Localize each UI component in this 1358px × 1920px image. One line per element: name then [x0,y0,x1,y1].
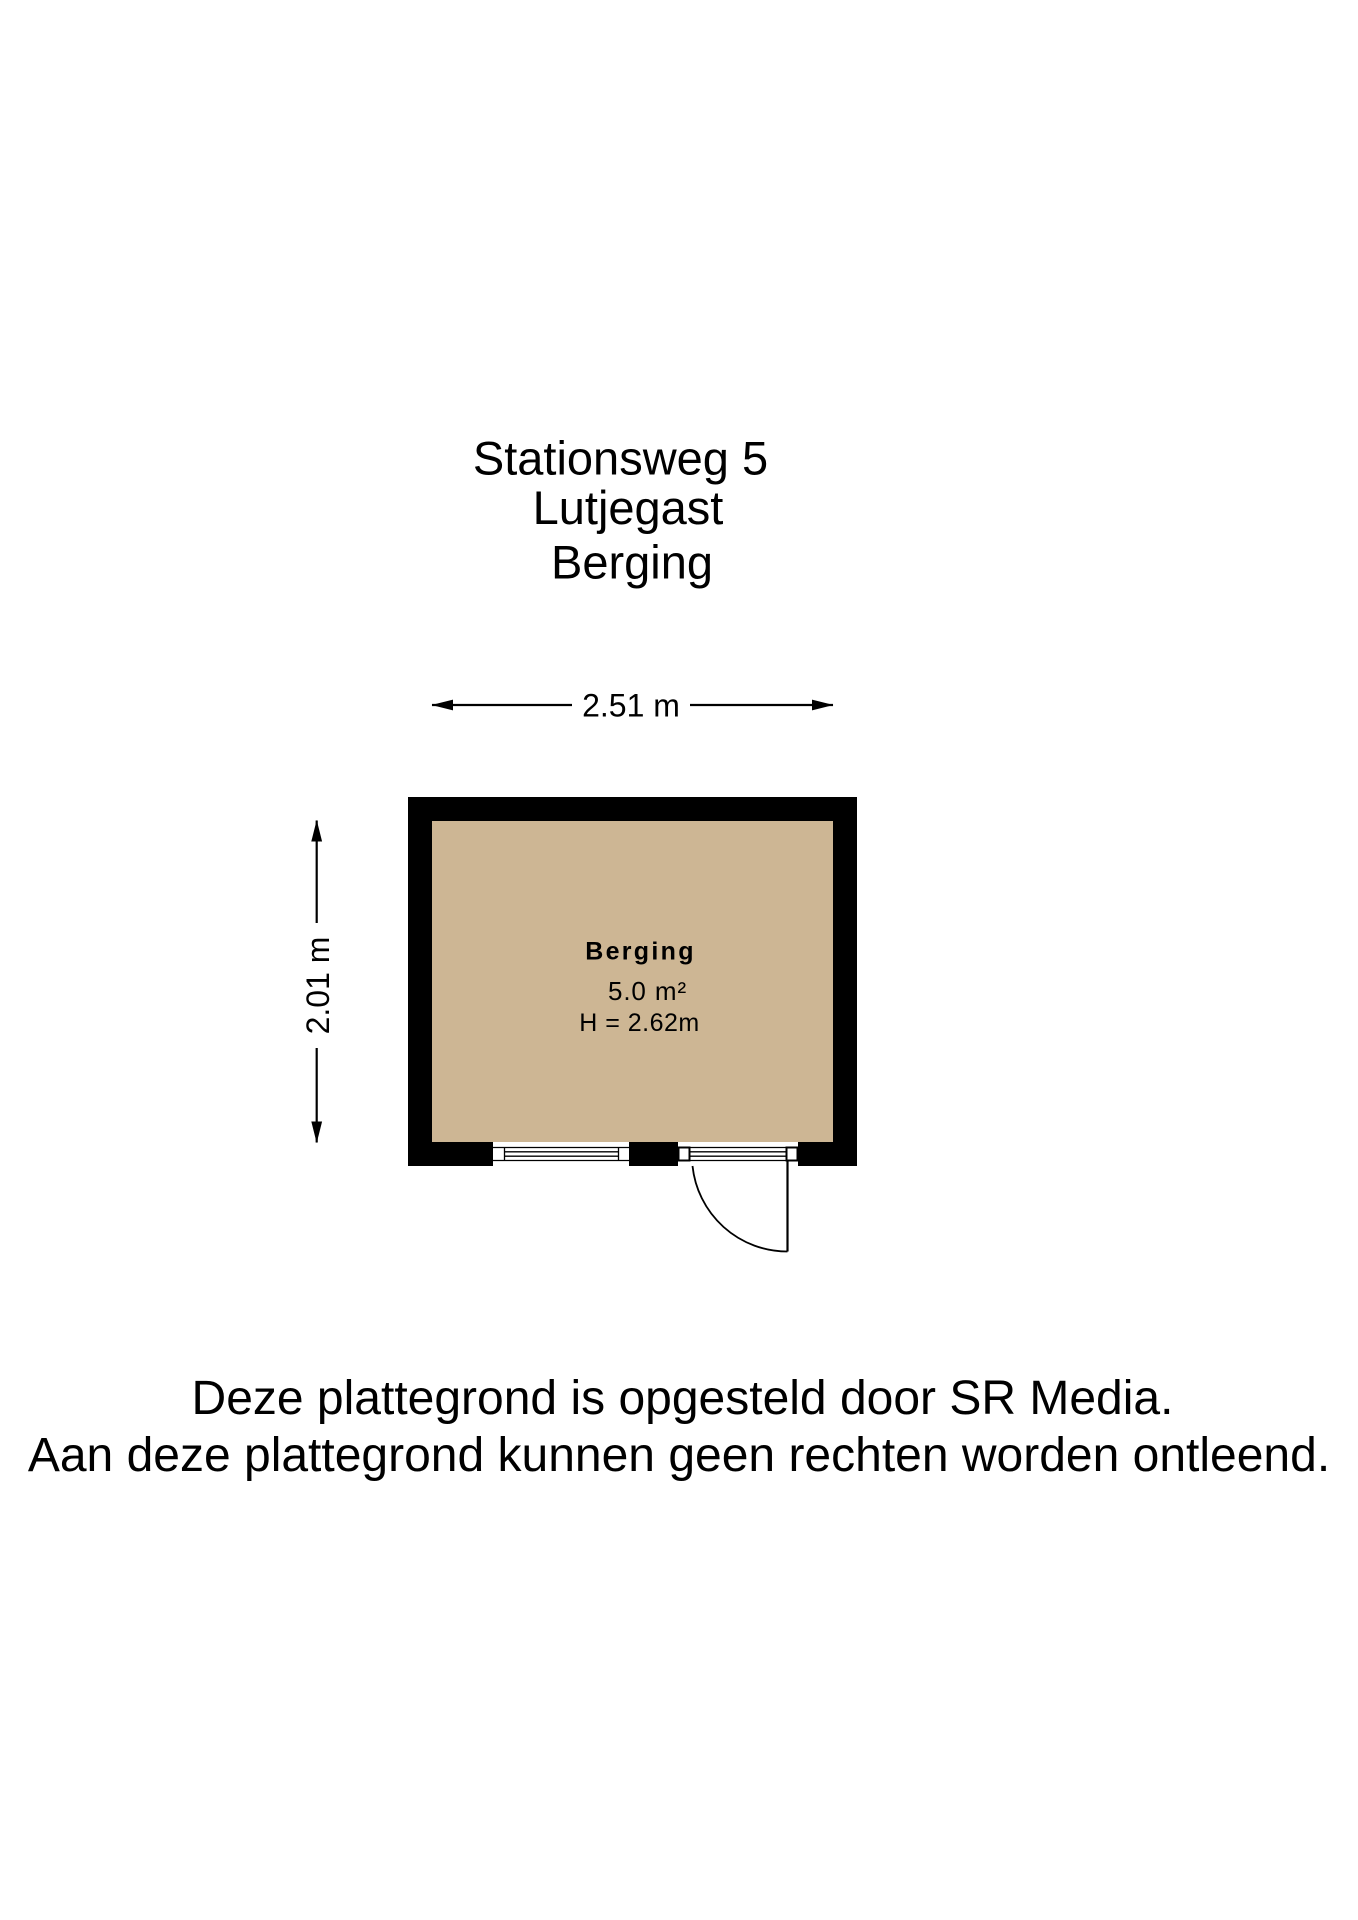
svg-text:Lutjegast: Lutjegast [533,481,724,534]
svg-text:Berging: Berging [585,938,696,966]
svg-text:5.0 m²: 5.0 m² [608,976,687,1006]
svg-text:2.01 m: 2.01 m [300,937,336,1035]
svg-text:Stationsweg 5: Stationsweg 5 [473,432,768,485]
svg-text:Deze plattegrond is opgesteld: Deze plattegrond is opgesteld door SR Me… [192,1372,1174,1425]
svg-text:Aan deze plattegrond kunnen ge: Aan deze plattegrond kunnen geen rechten… [28,1429,1330,1482]
svg-text:2.51 m: 2.51 m [582,688,680,724]
svg-text:H = 2.62m: H = 2.62m [579,1009,700,1037]
svg-text:Berging: Berging [551,536,713,589]
